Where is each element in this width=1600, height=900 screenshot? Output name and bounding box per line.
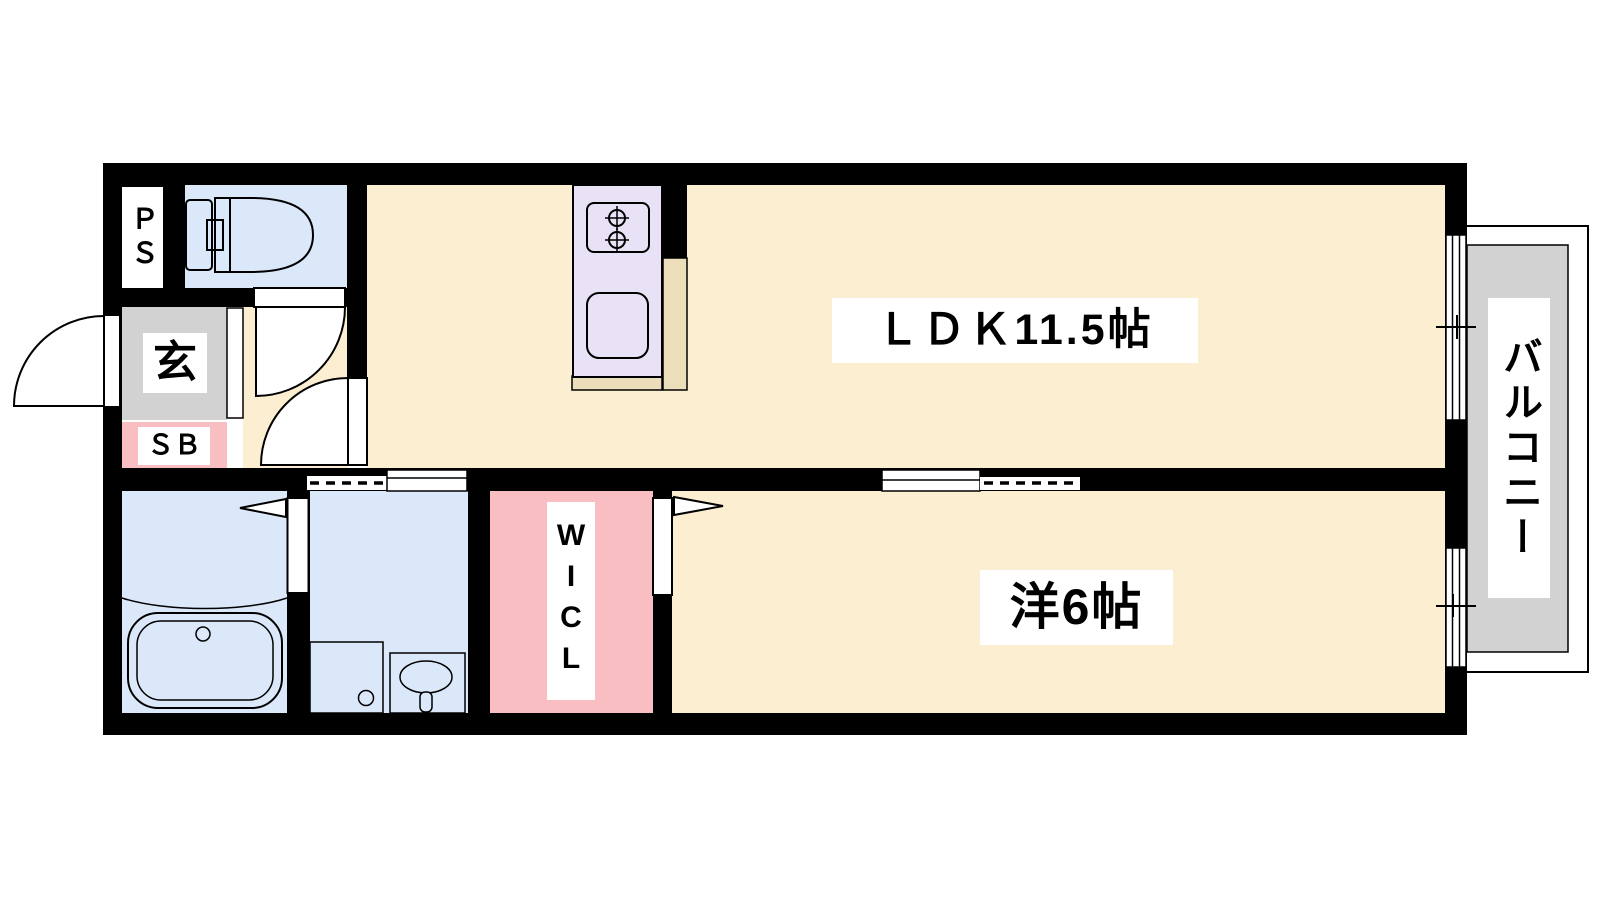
wall-bottom [103,713,1467,735]
western-room-label: 洋6帖 [980,570,1173,645]
bathroom-floor [122,490,287,713]
wall-toilet-right [347,185,367,378]
wall-center-divider [103,468,1445,491]
floor-plan: ＰＳ 玄 ＳＢ WICL ＬＤＫ11.5帖 洋6帖 バルコニー [0,0,1600,900]
entrance-step [227,308,243,418]
shoe-box-label: ＳＢ [138,427,210,465]
ldk-label: ＬＤＫ11.5帖 [832,298,1198,363]
washroom-floor [310,490,468,713]
wall-top [103,163,1467,185]
walk-in-closet-label: WICL [547,502,595,700]
wall-washroom-wicl [468,468,490,713]
balcony-label: バルコニー [1488,298,1550,598]
pipe-space-label: ＰＳ [122,187,163,288]
wall-kitchen-stub [662,185,687,258]
kitchen-counter-bottom [572,376,662,390]
floor-plan-drawing [0,0,1600,900]
front-door [14,315,120,407]
entrance-label: 玄 [143,333,207,393]
kitchen-counter-right [663,258,687,390]
